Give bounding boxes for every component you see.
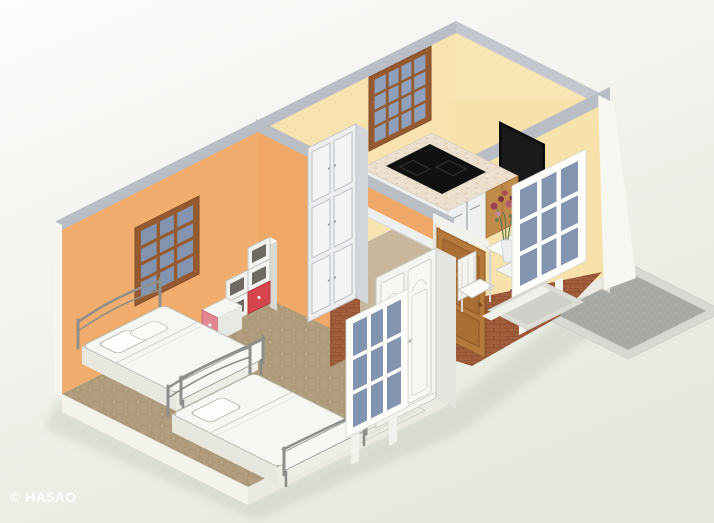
left-wall-edge — [54, 221, 62, 396]
floorplan-3d-scene — [0, 0, 714, 523]
tall-cabinet — [308, 124, 368, 322]
watermark: © HA5AO — [10, 489, 77, 505]
render-canvas: © HA5AO — [0, 0, 714, 523]
